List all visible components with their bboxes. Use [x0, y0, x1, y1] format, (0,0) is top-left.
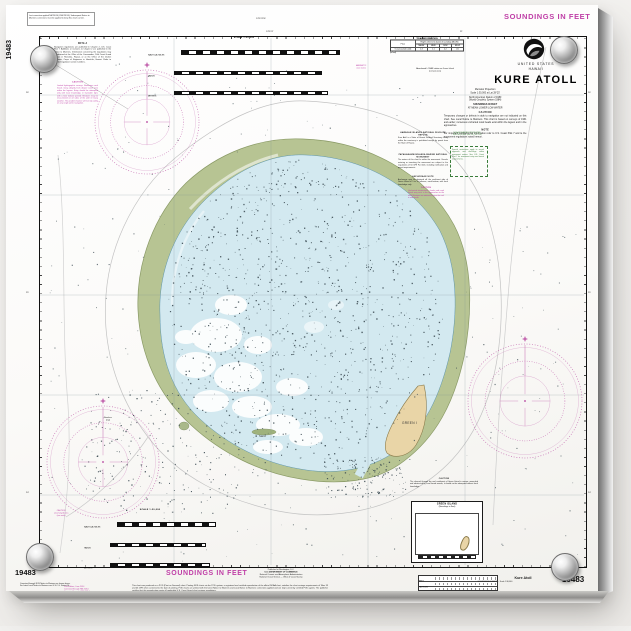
lon-label: 21'	[460, 30, 463, 33]
lat-label: 24'	[26, 491, 29, 494]
acrylic-print: Last correction applied NM 26/14 (LNM 25…	[6, 5, 598, 591]
top-center-label: 178°22'W	[256, 17, 265, 20]
inset-frame	[415, 513, 479, 555]
lon-label: 178°22'	[266, 30, 273, 33]
mounting-standoff-top-right	[550, 36, 578, 64]
pod-chart-label: Kure Atoll SOUNDINGS IN FEET — Scale 1:3…	[500, 576, 546, 585]
inset-scale-bar	[418, 555, 476, 559]
mounting-standoff-bottom-right	[551, 553, 579, 581]
margin-correction-note: Last correction applied NM 26/14 (LNM 25…	[27, 12, 95, 26]
sand-island-label: Sand	[259, 434, 266, 438]
unit-conversion-scale: FEET FATHOMS METERS	[418, 575, 498, 591]
photo-backdrop: Last correction applied NM 26/14 (LNM 25…	[0, 0, 631, 626]
breakers-label: Breakers (rep)	[88, 398, 128, 445]
border-ticks-left	[40, 37, 42, 567]
lat-label: 24'	[588, 491, 591, 494]
acrylic-edge-bottom	[9, 591, 609, 603]
lat-label: 26'	[26, 91, 29, 94]
caution-note-nw: CAUTION Limited hydrographic surveys. Nu…	[57, 81, 98, 133]
title-block: UNITED STATES HAWAII KURE ATOLL Mercator…	[474, 62, 598, 179]
chart-title: KURE ATOLL	[474, 74, 598, 86]
acrylic-edge-right	[598, 8, 613, 597]
caution-note-south: CAUTION The channel through the reef sou…	[410, 477, 478, 501]
monument-restrictions-note: Special restrictions apply to vessel app…	[450, 146, 488, 177]
green-island-inset: GREEN ISLAND (Soundings in Feet)	[411, 501, 483, 563]
soundings-in-feet-bottom: SOUNDINGS IN FEET	[166, 570, 247, 577]
graphic-scale-top: SCALE 1:30,000 NAUTICAL MILES YARDS METE…	[148, 36, 340, 102]
lat-label: 25'	[26, 291, 29, 294]
graphic-scale-bottom: SCALE 1:30,000 NAUTICAL MILES YARDS METE…	[84, 508, 216, 574]
region-label: HAWAII	[474, 67, 598, 71]
mounting-standoff-bottom-left	[26, 543, 54, 571]
caution-note-east: CAUTION Uncharted obstructions, shoals a…	[408, 186, 444, 215]
tidal-information-table: TIDAL INFORMATION Place Heights referred…	[390, 37, 464, 71]
noaa-logo	[523, 38, 545, 60]
protected-species-note: NOAA FISHERIES PROTECTED SPECIES ZONE (s…	[450, 131, 484, 142]
caution-note-west: CAUTION unsurveyed area (see note)	[44, 491, 78, 544]
loran-note: Abandoned LORAN station on Green Island(…	[404, 67, 466, 78]
mounting-standoff-top-left	[30, 45, 58, 73]
country-label: UNITED STATES	[474, 62, 598, 66]
chart-number-left-edge: 19483	[6, 40, 13, 59]
soundings-in-feet-top: SOUNDINGS IN FEET	[504, 12, 590, 21]
magnetic-note: MAGNETIC (see note)	[344, 46, 378, 93]
green-island-label: GREEN I	[402, 421, 417, 425]
lat-label: 25'	[588, 291, 591, 294]
